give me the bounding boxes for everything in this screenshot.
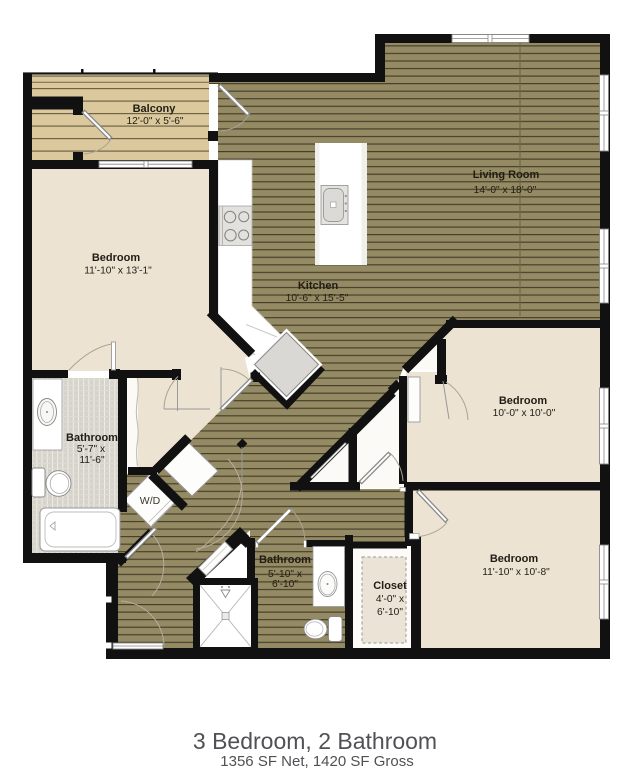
svg-text:10'-0" x 10'-0": 10'-0" x 10'-0" <box>493 408 556 419</box>
svg-text:Bathroom: Bathroom <box>259 554 311 566</box>
svg-text:11'-10" x 13'-1": 11'-10" x 13'-1" <box>84 266 152 277</box>
svg-text:3 Bedroom, 2 Bathroom: 3 Bedroom, 2 Bathroom <box>193 728 437 754</box>
svg-text:Bedroom: Bedroom <box>490 553 539 565</box>
svg-text:5'-7" x: 5'-7" x <box>77 444 105 455</box>
svg-text:4'-0" x: 4'-0" x <box>376 594 404 605</box>
svg-text:10'-6" x 15'-5": 10'-6" x 15'-5" <box>286 293 349 304</box>
svg-text:12'-0" x 5'-6": 12'-0" x 5'-6" <box>127 116 184 127</box>
svg-text:Bedroom: Bedroom <box>499 395 548 407</box>
svg-text:Balcony: Balcony <box>133 103 177 115</box>
svg-text:6'-10": 6'-10" <box>377 607 403 618</box>
svg-text:6'-10": 6'-10" <box>272 579 298 590</box>
svg-text:1356 SF Net, 1420 SF Gross: 1356 SF Net, 1420 SF Gross <box>220 753 413 770</box>
svg-text:Living Room: Living Room <box>473 169 540 181</box>
svg-text:Bedroom: Bedroom <box>92 252 141 264</box>
svg-text:Closet: Closet <box>373 580 407 592</box>
svg-text:Bathroom: Bathroom <box>66 432 118 444</box>
svg-text:14'-0" x 18'-0": 14'-0" x 18'-0" <box>474 185 537 196</box>
svg-text:Kitchen: Kitchen <box>298 280 339 292</box>
svg-text:11'-10" x 10'-8": 11'-10" x 10'-8" <box>482 567 550 578</box>
svg-text:W/D: W/D <box>140 495 161 507</box>
svg-text:11'-6": 11'-6" <box>79 455 105 466</box>
